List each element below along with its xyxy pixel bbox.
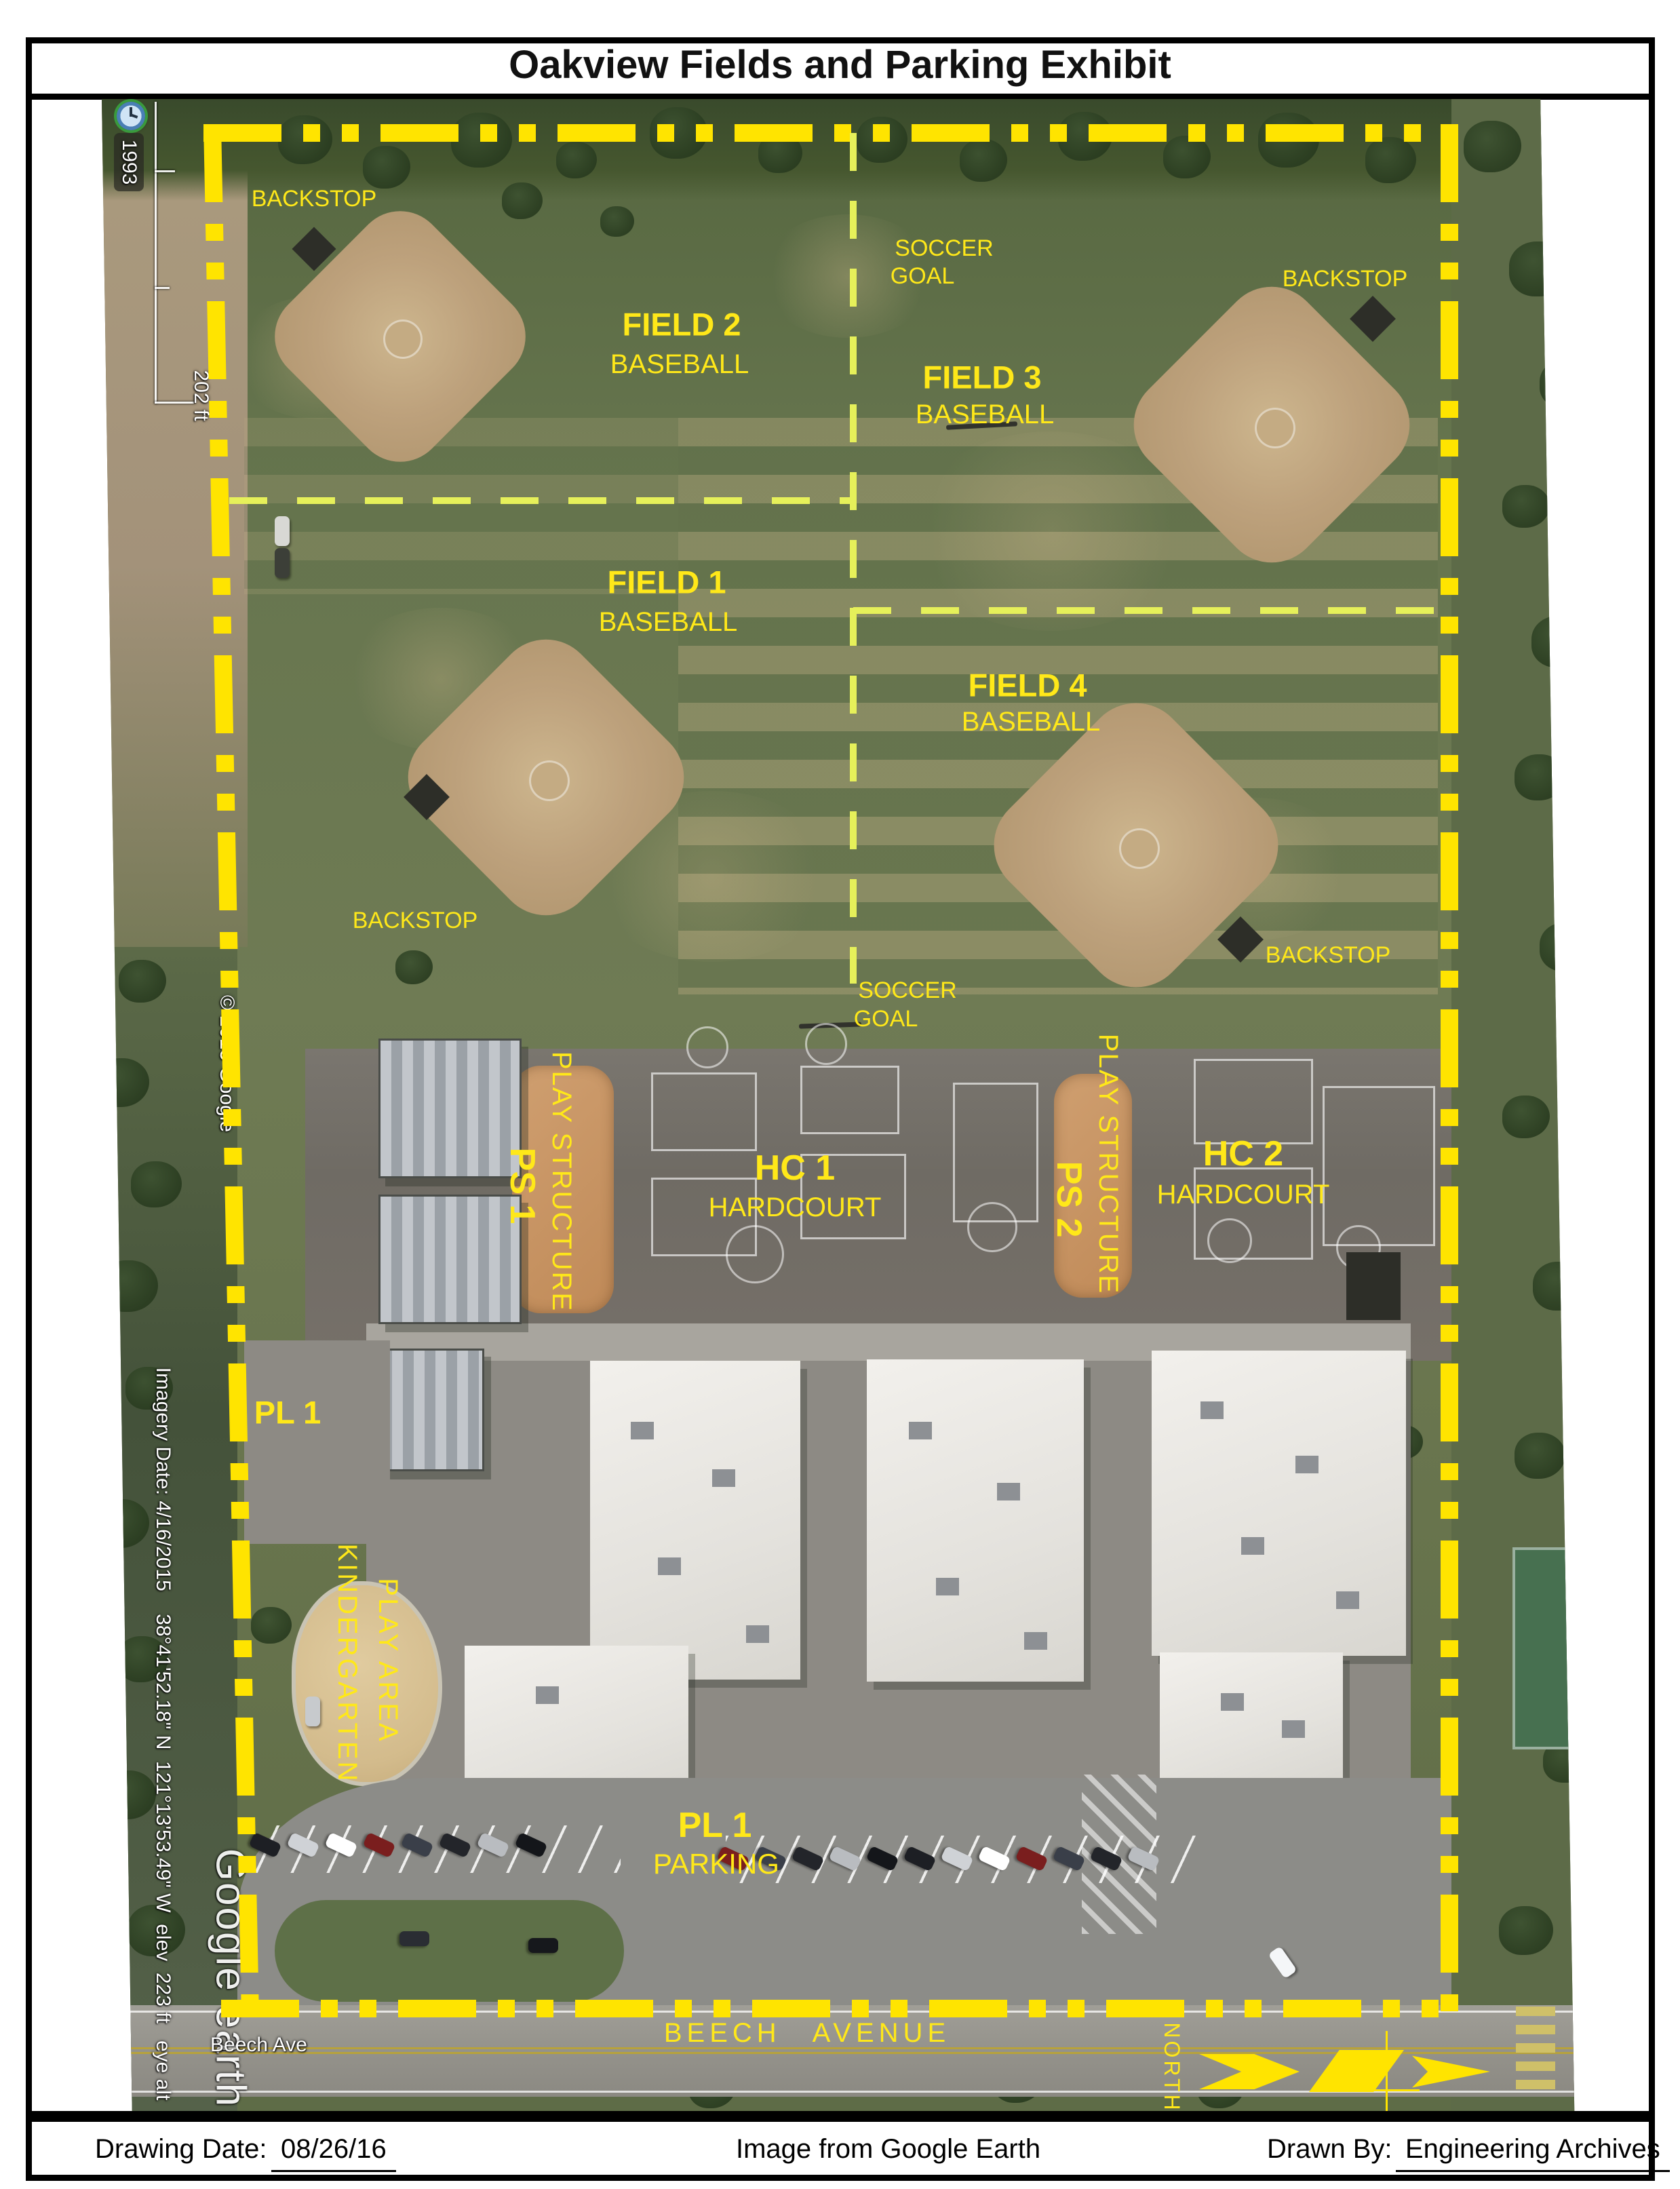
street-label-beech-ave: Beech Ave [210,2034,307,2057]
decor [1515,1433,1565,1479]
decor [746,1625,769,1643]
image-credit: Image from Google Earth [736,2134,1040,2165]
title-separator [26,94,1655,100]
multipurpose-building [1160,1652,1343,1788]
decor [651,1072,757,1151]
decor [1336,1591,1359,1609]
gray-building-2 [378,1195,522,1324]
boundary-bottom [221,2000,1458,2017]
gray-building-1 [378,1039,522,1178]
decor [909,1422,932,1439]
field1-sub: BASEBALL [599,608,738,636]
decor [960,139,1007,182]
decor [1531,616,1581,668]
kindergarten-line1: KINDERGARTEN [334,1543,361,1783]
drawn-by-label: Drawn By: [1267,2134,1392,2165]
east-sport-court [1512,1547,1580,1749]
soccer-goal-2-line1: SOCCER [858,979,956,1002]
backstop-field4: BACKSTOP [1266,944,1391,967]
crosswalk [1516,2007,1555,2095]
decor [1540,360,1580,408]
decor [528,1938,558,1953]
ge-history-clock-icon [117,102,145,130]
decor [953,1083,1038,1222]
ps2-sub: PLAY STRUCTURE [1095,1034,1122,1294]
decor [631,1422,654,1439]
field4-title: FIELD 4 [969,670,1087,701]
storage-shed [1346,1252,1401,1320]
divider-field3-field4 [853,607,1442,614]
backstop-field3: BACKSTOP [1283,267,1408,290]
decor [1024,1632,1047,1650]
field3-mound [1255,408,1295,448]
field1-title: FIELD 1 [608,566,726,598]
decor [967,1202,1017,1252]
decor [1464,121,1521,173]
decor [275,516,290,546]
decor [1509,241,1570,296]
drawing-date-value: 08/26/16 [271,2134,396,2172]
classroom-building-3 [1152,1351,1406,1656]
drawing-date-label: Drawing Date: [95,2134,267,2165]
decor [1543,159,1580,202]
decor [1502,1096,1550,1138]
decor [686,1026,728,1068]
decor [1200,1401,1224,1419]
decor [399,1931,429,1946]
decor [1540,923,1580,971]
boundary-right [1441,124,1458,2017]
classroom-building-2 [867,1359,1084,1682]
page-border-bottom [26,2175,1655,2181]
north-label: NORTH [1161,2022,1183,2112]
field3-title: FIELD 3 [923,362,1042,393]
hc2-sub: HARDCOURT [1157,1181,1330,1208]
decor [363,146,410,189]
decor [997,1483,1020,1500]
kindergarten-line2: PLAY AREA [374,1578,402,1743]
backstop-field1: BACKSTOP [353,909,478,932]
field3-backstop-structure [1350,296,1396,342]
decor [1502,485,1550,528]
parking-island [275,1900,624,2002]
ge-year-label: 1993 [117,140,140,185]
decor [275,548,290,578]
ps1-title: PS 1 [505,1148,540,1224]
ge-timeline [155,102,157,404]
ge-timeline-tick-1 [155,170,175,172]
hc1-sub: HARDCOURT [709,1194,882,1221]
decor [502,182,543,219]
ge-imagery-line: Imagery Date: 4/16/2015 38°41'52.18" N 1… [151,1368,174,2101]
pl1-parking-sub: PARKING [653,1850,779,1878]
beech-avenue: BEECH AVENUE [664,2019,950,2047]
decor [712,1469,735,1487]
decor [1515,754,1565,800]
boundary-top [203,124,1458,142]
decor [800,1066,899,1134]
ps2-title: PS 2 [1051,1161,1087,1238]
ge-timeline-tick-3 [155,402,194,404]
decor [1323,1086,1435,1246]
field3-sub: BASEBALL [916,401,1055,428]
pl1-upper: PL 1 [254,1397,321,1429]
field2-sub: BASEBALL [610,351,749,378]
page-border-left [26,37,32,2181]
page-title: Oakview Fields and Parking Exhibit [0,42,1680,88]
decor [726,1225,784,1283]
field4-mound [1119,828,1160,869]
decor [119,960,166,1003]
decor [1533,1262,1580,1311]
decor [251,1607,292,1644]
aerial-photo: 1993 202 ft © 2015 Google Imagery Date: … [102,99,1580,2111]
decor [1282,1720,1305,1738]
decor [131,1161,182,1207]
decor [600,206,634,237]
decor [1194,1059,1313,1144]
field2-mound [383,319,423,359]
photo-bottom-edge [32,2111,1649,2122]
backstop-field2: BACKSTOP [252,187,377,210]
decor [395,950,433,984]
decor [305,1697,320,1726]
soccer-goal-2-line2: GOAL [854,1007,918,1030]
ge-timeline-tick-2 [155,287,170,289]
decor [536,1686,559,1704]
drawn-by-value: Engineering Archives [1396,2134,1670,2172]
field2-title: FIELD 2 [623,309,741,341]
north-arrow-crosshair-v [1386,2031,1388,2120]
soccer-goal-1-line2: GOAL [891,265,954,288]
decor [658,1557,681,1575]
north-arrow-crosshair-h [1348,2089,1420,2091]
field1-mound [529,760,570,801]
hc2-title: HC 2 [1203,1136,1283,1171]
ps1-sub: PLAY STRUCTURE [548,1051,575,1312]
decor [1207,1218,1252,1263]
decor [936,1578,959,1595]
soccer-goal-1-line1: SOCCER [895,237,993,260]
decor [805,1023,847,1065]
exhibit-page: { "title": "Oakview Fields and Parking E… [0,0,1680,2189]
decor [1241,1537,1264,1555]
hc1-title: HC 1 [755,1150,835,1186]
decor [1365,137,1416,183]
upper-parking-strip [244,1340,390,1544]
page-border-right [1649,37,1655,2181]
field4-sub: BASEBALL [962,708,1101,735]
divider-field1-field2 [229,497,853,504]
decor [1295,1456,1318,1473]
pl1-parking-title: PL 1 [678,1808,752,1843]
divider-fields-vertical [850,133,857,984]
decor [1221,1693,1244,1711]
